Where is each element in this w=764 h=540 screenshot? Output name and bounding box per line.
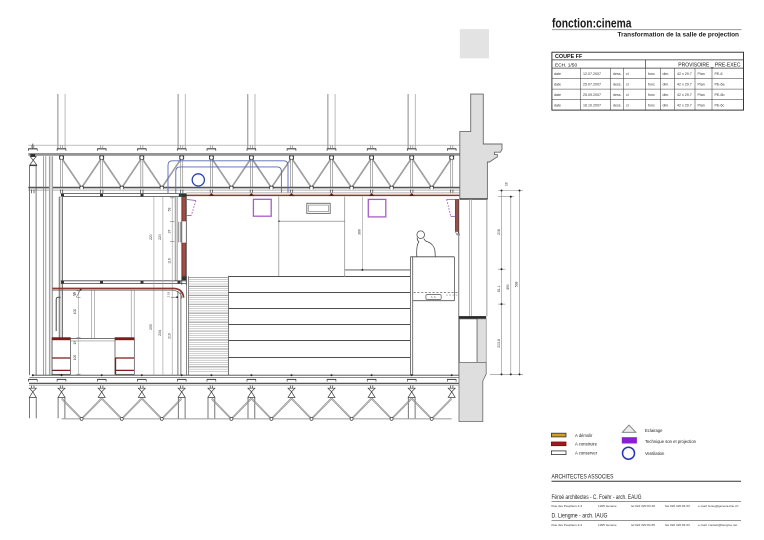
svg-text:dess.: dess. [613,72,622,76]
svg-text:Transformation de la salle de: Transformation de la salle de projection [618,33,740,39]
svg-text:203.8: 203.8 [497,339,501,348]
svg-text:12.07.2007: 12.07.2007 [583,72,601,76]
svg-text:Rue des Peupliers 2-4: Rue des Peupliers 2-4 [552,523,583,527]
svg-text:Plan: Plan [698,103,705,107]
svg-text:dim.: dim. [663,72,670,76]
svg-text:220: 220 [149,234,153,240]
svg-text:Plan: Plan [698,72,705,76]
svg-text:42 x 29.7: 42 x 29.7 [677,82,692,86]
svg-text:Rue des Peupliers 2-4: Rue des Peupliers 2-4 [552,504,583,508]
svg-text:A démolir: A démolir [575,433,593,438]
svg-text:Eclairage: Eclairage [645,428,663,433]
svg-text:1205 Genève: 1205 Genève [598,504,617,508]
svg-text:date: date [554,82,561,86]
svg-text:PE-6: PE-6 [715,72,723,76]
svg-text:ECH. 1/50: ECH. 1/50 [555,62,577,68]
svg-text:42 x 29.7: 42 x 29.7 [677,93,692,97]
svg-text:cl: cl [626,103,629,107]
svg-text:dim.: dim. [663,82,670,86]
svg-text:15: 15 [73,341,77,345]
svg-text:Technique son et projection: Technique son et projection [645,439,697,444]
svg-text:dim.: dim. [663,93,670,97]
svg-text:fonc: fonc [648,103,655,107]
svg-text:fonc: fonc [648,93,655,97]
svg-text:1205 Genève: 1205 Genève [598,523,617,527]
svg-text:234: 234 [158,330,162,336]
svg-text:e-mail: ferse@genova-line.ch: e-mail: ferse@genova-line.ch [698,504,739,508]
svg-text:116: 116 [168,258,172,264]
svg-text:100: 100 [73,309,77,315]
svg-text:date: date [554,72,561,76]
svg-text:S. S.: S. S. [431,295,437,299]
svg-text:e-mail: contact@liengme.net: e-mail: contact@liengme.net [698,523,737,527]
svg-text:Féroé architectes - C. Foehr -: Féroé architectes - C. Foehr - arch. EAU… [552,495,642,501]
svg-text:Plan: Plan [698,82,705,86]
svg-text:fonc: fonc [648,82,655,86]
svg-text:219: 219 [168,333,172,339]
svg-text:PE-6a: PE-6a [715,82,725,86]
svg-text:fax 022 320 84 03: fax 022 320 84 03 [665,504,690,508]
svg-text:cl: cl [626,82,629,86]
svg-text:208: 208 [497,229,501,235]
svg-text:A conserver: A conserver [575,451,598,456]
svg-text:59: 59 [168,208,172,212]
svg-text:7.5: 7.5 [72,292,76,296]
svg-text:cl: cl [626,93,629,97]
svg-text:42 x 29.7: 42 x 29.7 [677,103,692,107]
svg-text:220: 220 [158,234,162,240]
svg-text:42 x 29.7: 42 x 29.7 [677,72,692,76]
svg-text:37: 37 [168,230,172,234]
svg-text:18: 18 [505,182,509,186]
svg-text:date: date [554,93,561,97]
svg-text:366: 366 [357,229,361,235]
svg-text:D. Liengme - arch. IAUG: D. Liengme - arch. IAUG [552,514,608,520]
svg-text:16.10.2007: 16.10.2007 [583,103,601,107]
svg-text:ARCHITECTES ASSOCIES: ARCHITECTES ASSOCIES [552,475,614,481]
svg-text:date: date [554,103,561,107]
svg-text:2.19: 2.19 [167,291,171,297]
svg-text:538: 538 [515,281,519,287]
svg-text:tel 022 320 84 65: tel 022 320 84 65 [631,523,655,527]
svg-text:A construire: A construire [575,442,598,447]
svg-text:tel 022 320 84 28: tel 022 320 84 28 [631,504,655,508]
svg-text:dim.: dim. [663,103,670,107]
svg-text:490: 490 [506,284,510,290]
svg-text:fax 022 320 84 03: fax 022 320 84 03 [665,523,690,527]
svg-text:25.07.2007: 25.07.2007 [583,82,601,86]
svg-text:dess.: dess. [613,93,622,97]
svg-text:25.09.2007: 25.09.2007 [583,93,601,97]
svg-text:100: 100 [73,355,77,361]
svg-text:fonction:cinema: fonction:cinema [552,17,632,31]
svg-text:81.1: 81.1 [497,285,501,292]
svg-text:Ventilation: Ventilation [645,451,665,456]
svg-text:COUPE FF: COUPE FF [555,54,583,60]
svg-text:255: 255 [149,324,153,330]
svg-text:Plan: Plan [698,93,705,97]
svg-text:fonc: fonc [648,72,655,76]
svg-text:PROVISOIRE _ PRE-EXEC: PROVISOIRE _ PRE-EXEC [678,63,741,69]
svg-text:dess.: dess. [613,82,622,86]
svg-text:PE-6b: PE-6b [715,93,725,97]
svg-text:cl: cl [626,72,629,76]
svg-text:dess.: dess. [613,103,622,107]
svg-text:PE-6c: PE-6c [715,103,725,107]
